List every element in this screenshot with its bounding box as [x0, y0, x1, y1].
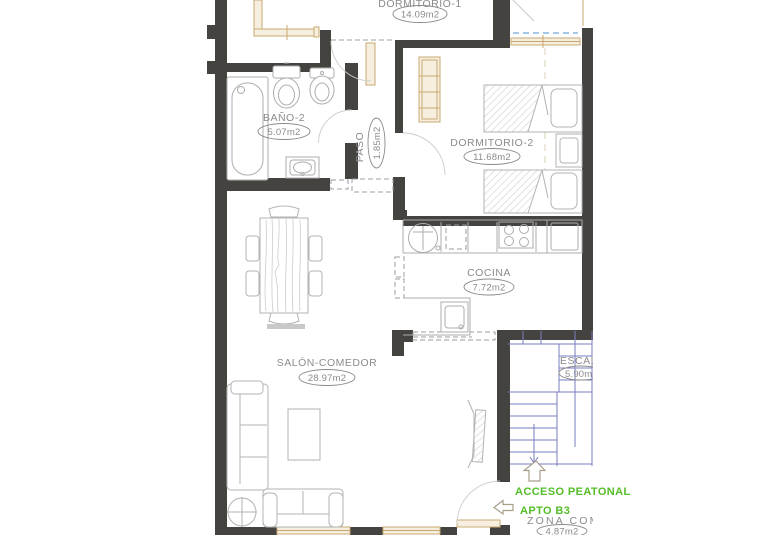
room-area-paso: 1.85m2 — [372, 127, 383, 160]
room-area-bano2: 5.07m2 — [268, 127, 301, 138]
sofa-left — [227, 381, 268, 490]
room-label-cocina: COCINA — [467, 267, 511, 279]
bathroom-sink — [286, 157, 319, 178]
door-bath-arc — [319, 110, 352, 143]
floor-plan-canvas: DORMITORIO-1 14.09m2 BAÑO-2 5.07m2 PASO … — [0, 0, 770, 535]
zona-comun-area: 4.87m2 — [546, 527, 579, 535]
room-label-dormitorio1: DORMITORIO-1 — [378, 0, 461, 10]
toilet — [273, 63, 300, 108]
apto-left-arrow-icon — [494, 501, 513, 515]
room-label-bano2: BAÑO-2 — [263, 111, 305, 124]
coffee-table — [288, 409, 320, 460]
chair-bottom-seat — [267, 324, 305, 329]
door-dorm1 — [366, 43, 375, 85]
room-label-salon: SALÓN-COMEDOR — [277, 356, 377, 369]
entrance-door — [457, 520, 500, 527]
wardrobe-dorm2 — [419, 57, 440, 122]
chair-left-1 — [246, 236, 259, 261]
chair-left-2 — [246, 271, 259, 296]
bedroom2-furniture — [419, 57, 582, 213]
chair-bottom — [269, 313, 299, 324]
wardrobe-dorm1 — [254, 0, 262, 30]
staircase — [508, 331, 592, 466]
floor-plan: DORMITORIO-1 14.09m2 BAÑO-2 5.07m2 PASO … — [0, 0, 770, 535]
room-label-dormitorio2: DORMITORIO-2 — [450, 137, 533, 149]
room-area-dormitorio1: 14.09m2 — [401, 10, 439, 21]
chair-right-2 — [309, 271, 322, 296]
kitchen-lower-counter — [403, 298, 470, 335]
chair-top — [269, 206, 299, 217]
chair-right-1 — [309, 236, 322, 261]
drawing-crop-edge — [593, 0, 770, 535]
apto-b3-label: APTO B3 — [520, 505, 570, 517]
bed-2 — [484, 170, 582, 213]
sofa-bottom — [263, 489, 343, 527]
dining-table — [246, 206, 322, 329]
nightstand — [556, 134, 582, 167]
room-area-escalera: 5.90m2 — [565, 369, 598, 380]
dishwasher — [441, 302, 468, 332]
tv-unit — [468, 400, 486, 468]
door-dorm2-arc — [403, 133, 445, 175]
side-table — [227, 497, 257, 527]
room-area-salon: 28.97m2 — [308, 373, 346, 384]
room-area-cocina: 7.72m2 — [473, 283, 506, 294]
bed-1 — [484, 85, 582, 132]
room-area-dormitorio2: 11.68m2 — [473, 152, 511, 163]
room-label-paso: PASO — [354, 132, 366, 162]
stair-direction-line — [530, 424, 538, 463]
kitchen-sink — [409, 224, 441, 253]
acceso-peatonal-label: ACCESO PEATONAL — [515, 486, 631, 498]
bidet — [310, 68, 334, 104]
